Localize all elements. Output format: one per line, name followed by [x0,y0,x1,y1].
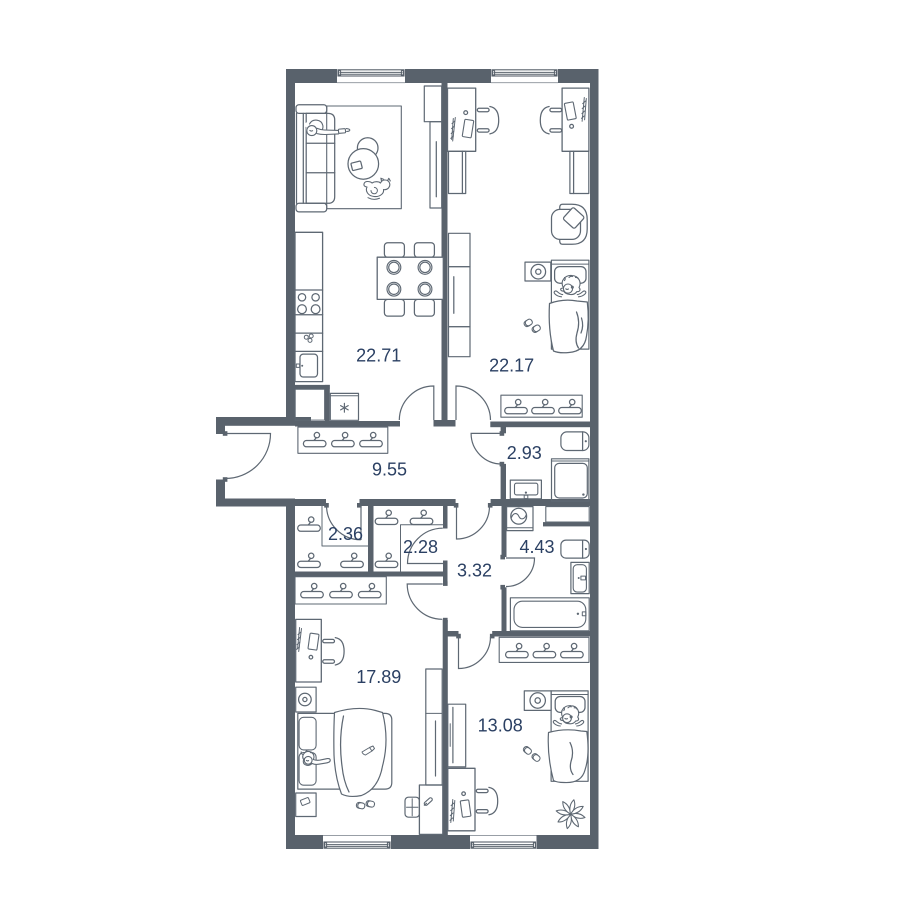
svg-text:22.17: 22.17 [489,356,534,376]
svg-text:22.71: 22.71 [356,345,401,365]
svg-text:4.43: 4.43 [519,537,554,557]
svg-text:3.32: 3.32 [457,560,492,580]
svg-text:17.89: 17.89 [356,667,401,687]
svg-text:2.36: 2.36 [328,524,363,544]
svg-text:2.28: 2.28 [403,537,438,557]
svg-text:13.08: 13.08 [478,716,523,736]
svg-text:9.55: 9.55 [372,459,407,479]
svg-text:2.93: 2.93 [507,443,542,463]
